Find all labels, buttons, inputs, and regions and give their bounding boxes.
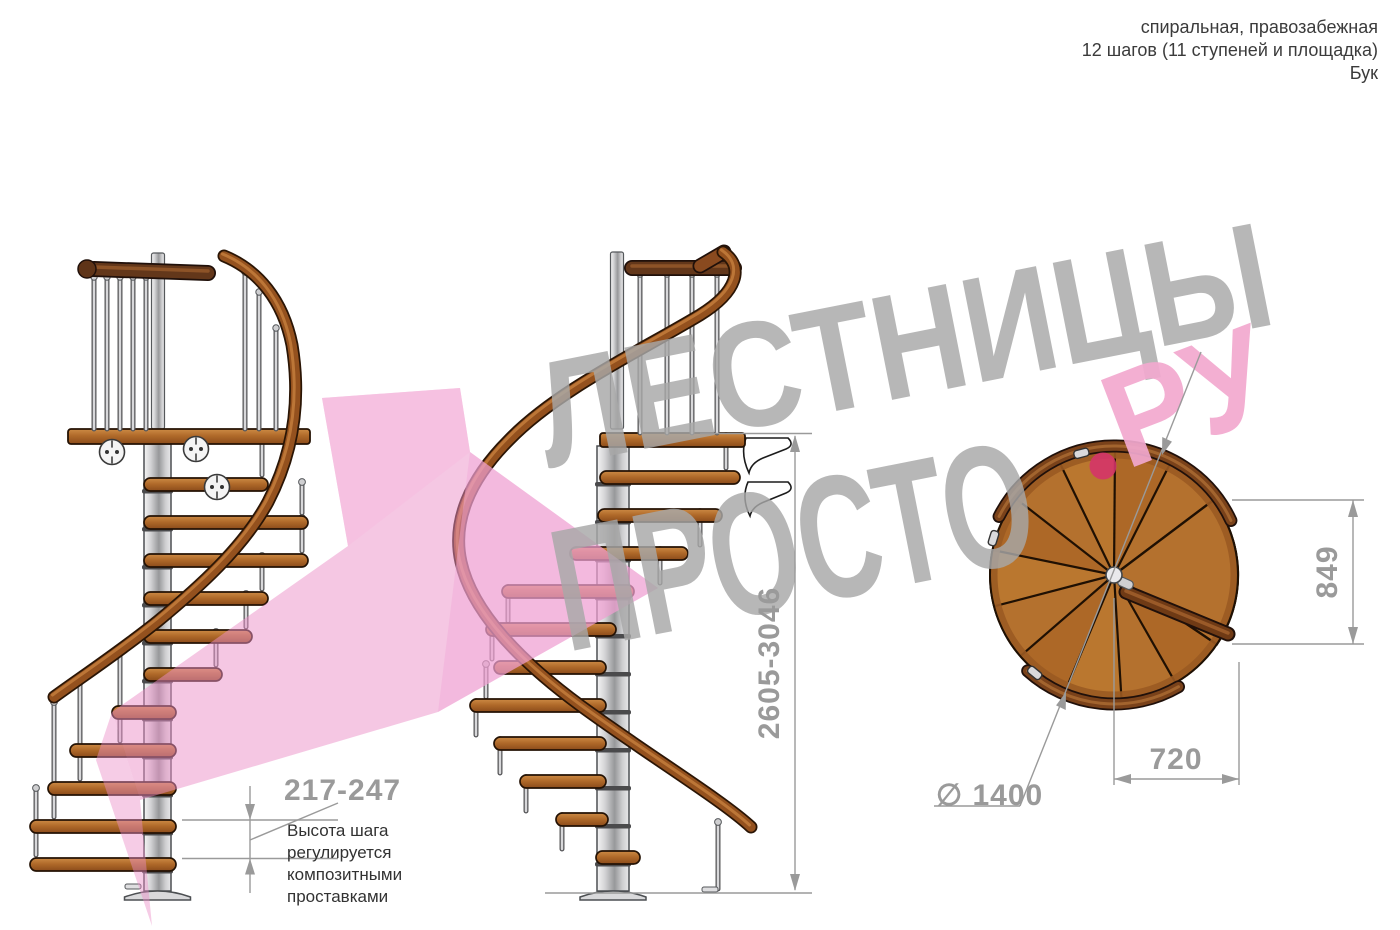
svg-text:регулируется: регулируется xyxy=(287,843,391,862)
rail-finial xyxy=(78,260,96,278)
dim-diameter-value: ∅ 1400 xyxy=(936,779,1043,812)
dim-total-height-value: 2605-3046 xyxy=(753,587,786,739)
dim-plan-depth: 849 xyxy=(1232,500,1364,644)
step xyxy=(144,592,268,605)
step xyxy=(144,516,308,529)
step xyxy=(30,820,176,833)
rod-foot xyxy=(702,887,718,892)
dim-step-height: 217-247 Высота шага регулируется компози… xyxy=(182,774,402,906)
dim-step-height-value: 217-247 xyxy=(284,774,401,807)
watermark-dot xyxy=(1090,453,1117,480)
drawing-page: спиральная, правозабежная 12 шагов (11 с… xyxy=(0,0,1400,930)
svg-text:композитными: композитными xyxy=(287,865,402,884)
step xyxy=(556,813,608,826)
rod-ball xyxy=(715,819,722,826)
svg-text:Высота шага: Высота шага xyxy=(287,821,389,840)
dim-plan-width-value: 720 xyxy=(1149,743,1202,776)
svg-text:проставками: проставками xyxy=(287,887,388,906)
baluster-ball xyxy=(273,325,279,331)
side-view-front xyxy=(30,253,310,900)
drawing-canvas: ЛЕСТНИЦЫ ПРОСТО РУ 2605-3046 xyxy=(0,0,1400,930)
step xyxy=(520,775,606,788)
step xyxy=(30,858,176,871)
base-flange xyxy=(125,891,191,900)
dim-step-height-note: Высота шага регулируется композитными пр… xyxy=(287,821,402,906)
rod-ball xyxy=(33,785,40,792)
dim-plan-depth-value: 849 xyxy=(1311,545,1344,598)
step xyxy=(494,737,606,750)
step xyxy=(596,851,640,864)
rod-ball xyxy=(299,479,306,486)
